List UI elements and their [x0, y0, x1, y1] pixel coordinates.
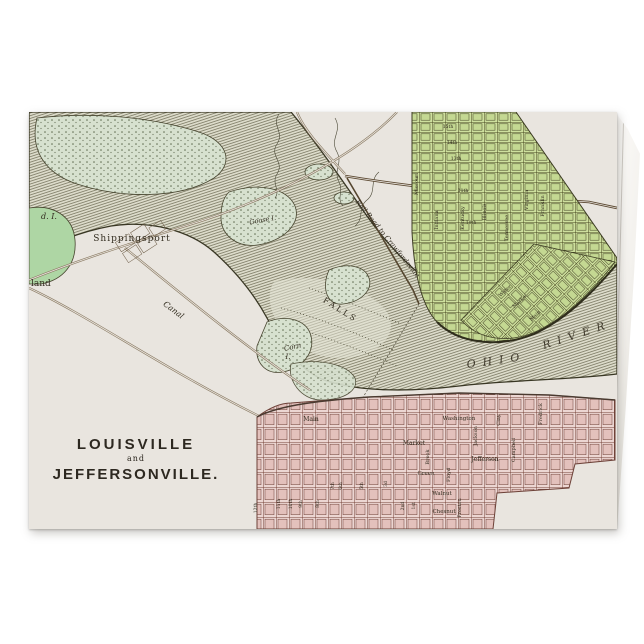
map-label-10th: 10th [288, 499, 294, 510]
map-label-6th: 6th [338, 482, 344, 490]
map-label-washington: Washington [443, 416, 476, 422]
map-label-1st: 1st [411, 502, 417, 509]
card-back-panel [615, 112, 641, 529]
map-title-line2: and [36, 455, 236, 463]
map-label-walnut: Walnut [432, 491, 452, 497]
map-label-preston: Preston [457, 497, 463, 517]
map-label-franklin: Franklin [540, 194, 546, 216]
map-label-shippingsport: Shippingsport [93, 234, 171, 244]
product-photo: Shippingsportlandd. I.Goose I.CornI.Cana… [0, 0, 644, 644]
map-label-kentucky: Kentucky [460, 206, 466, 230]
map-label-illinois: Illinois [482, 203, 488, 221]
map-label-chesnut: Chesnut [432, 509, 456, 515]
greeting-card-front: Shippingsportlandd. I.Goose I.CornI.Cana… [29, 112, 617, 529]
map-label-5th: 5th [359, 482, 365, 490]
map-label-14th: 14th [447, 140, 458, 146]
map-label-land: land [31, 279, 51, 289]
map-label-fredrick: Fredrick [538, 402, 544, 425]
map-label-8th: 8th [315, 500, 321, 508]
map-label-campbell: Campbell [511, 438, 517, 463]
map-label-brook: Brook [425, 448, 431, 464]
map-label-green: Green [417, 471, 435, 477]
map-label-main: Main [303, 416, 319, 423]
map-label-indiana: Indiana [434, 210, 440, 229]
map-label-missouri: Missouri [414, 173, 420, 195]
map-label-7th: 7th [330, 482, 336, 490]
map-label-15th: 15th [443, 124, 454, 130]
map-label-d-i-: d. I. [41, 212, 57, 221]
map-label-12th: 12th [253, 503, 259, 514]
map-label-11th: 11th [458, 188, 469, 194]
map-label-2nd: 2nd [400, 502, 406, 511]
map-label-floyd: Floyd [446, 467, 452, 482]
map-title-block: LOUISVILLE and JEFFERSONVILLE. [36, 437, 236, 482]
map-label-clay: Clay [496, 414, 502, 425]
map-label-3d: 3d [383, 481, 389, 487]
map-label-jefferson: Jefferson [470, 456, 498, 463]
map-title-line3: JEFFERSONVILLE. [36, 467, 236, 482]
map-label-market: Market [403, 440, 426, 447]
map-label-jackson: Jackson [473, 425, 479, 446]
map-title-line1: LOUISVILLE [36, 437, 236, 452]
map-label-13th: 13th [451, 156, 462, 162]
map-label-11th: 11th [276, 499, 282, 510]
map-label-i-: I. [285, 353, 291, 361]
map-label-tennessee: Tennessee [504, 215, 510, 241]
map-label-9th: 9th [298, 500, 304, 508]
map-label-10th: 10th [466, 220, 477, 226]
map-label-virginia: Virginia [524, 190, 530, 211]
